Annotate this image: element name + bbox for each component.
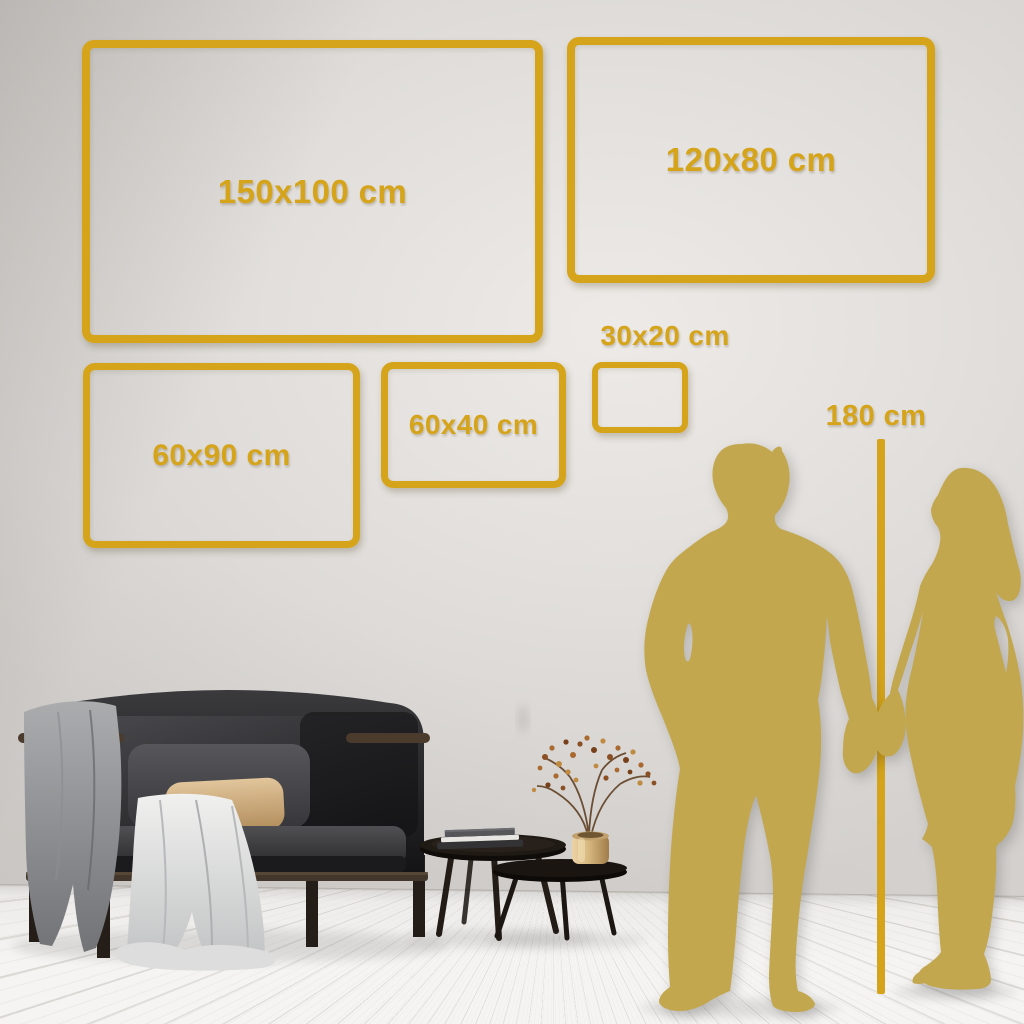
couple-and-height-line [0,0,1024,1024]
size-guide-image: 150x100 cm 120x80 cm 60x90 cm 60x40 cm 3… [0,0,1024,1024]
woman-silhouette [874,468,1024,990]
man-silhouette [644,443,880,1012]
